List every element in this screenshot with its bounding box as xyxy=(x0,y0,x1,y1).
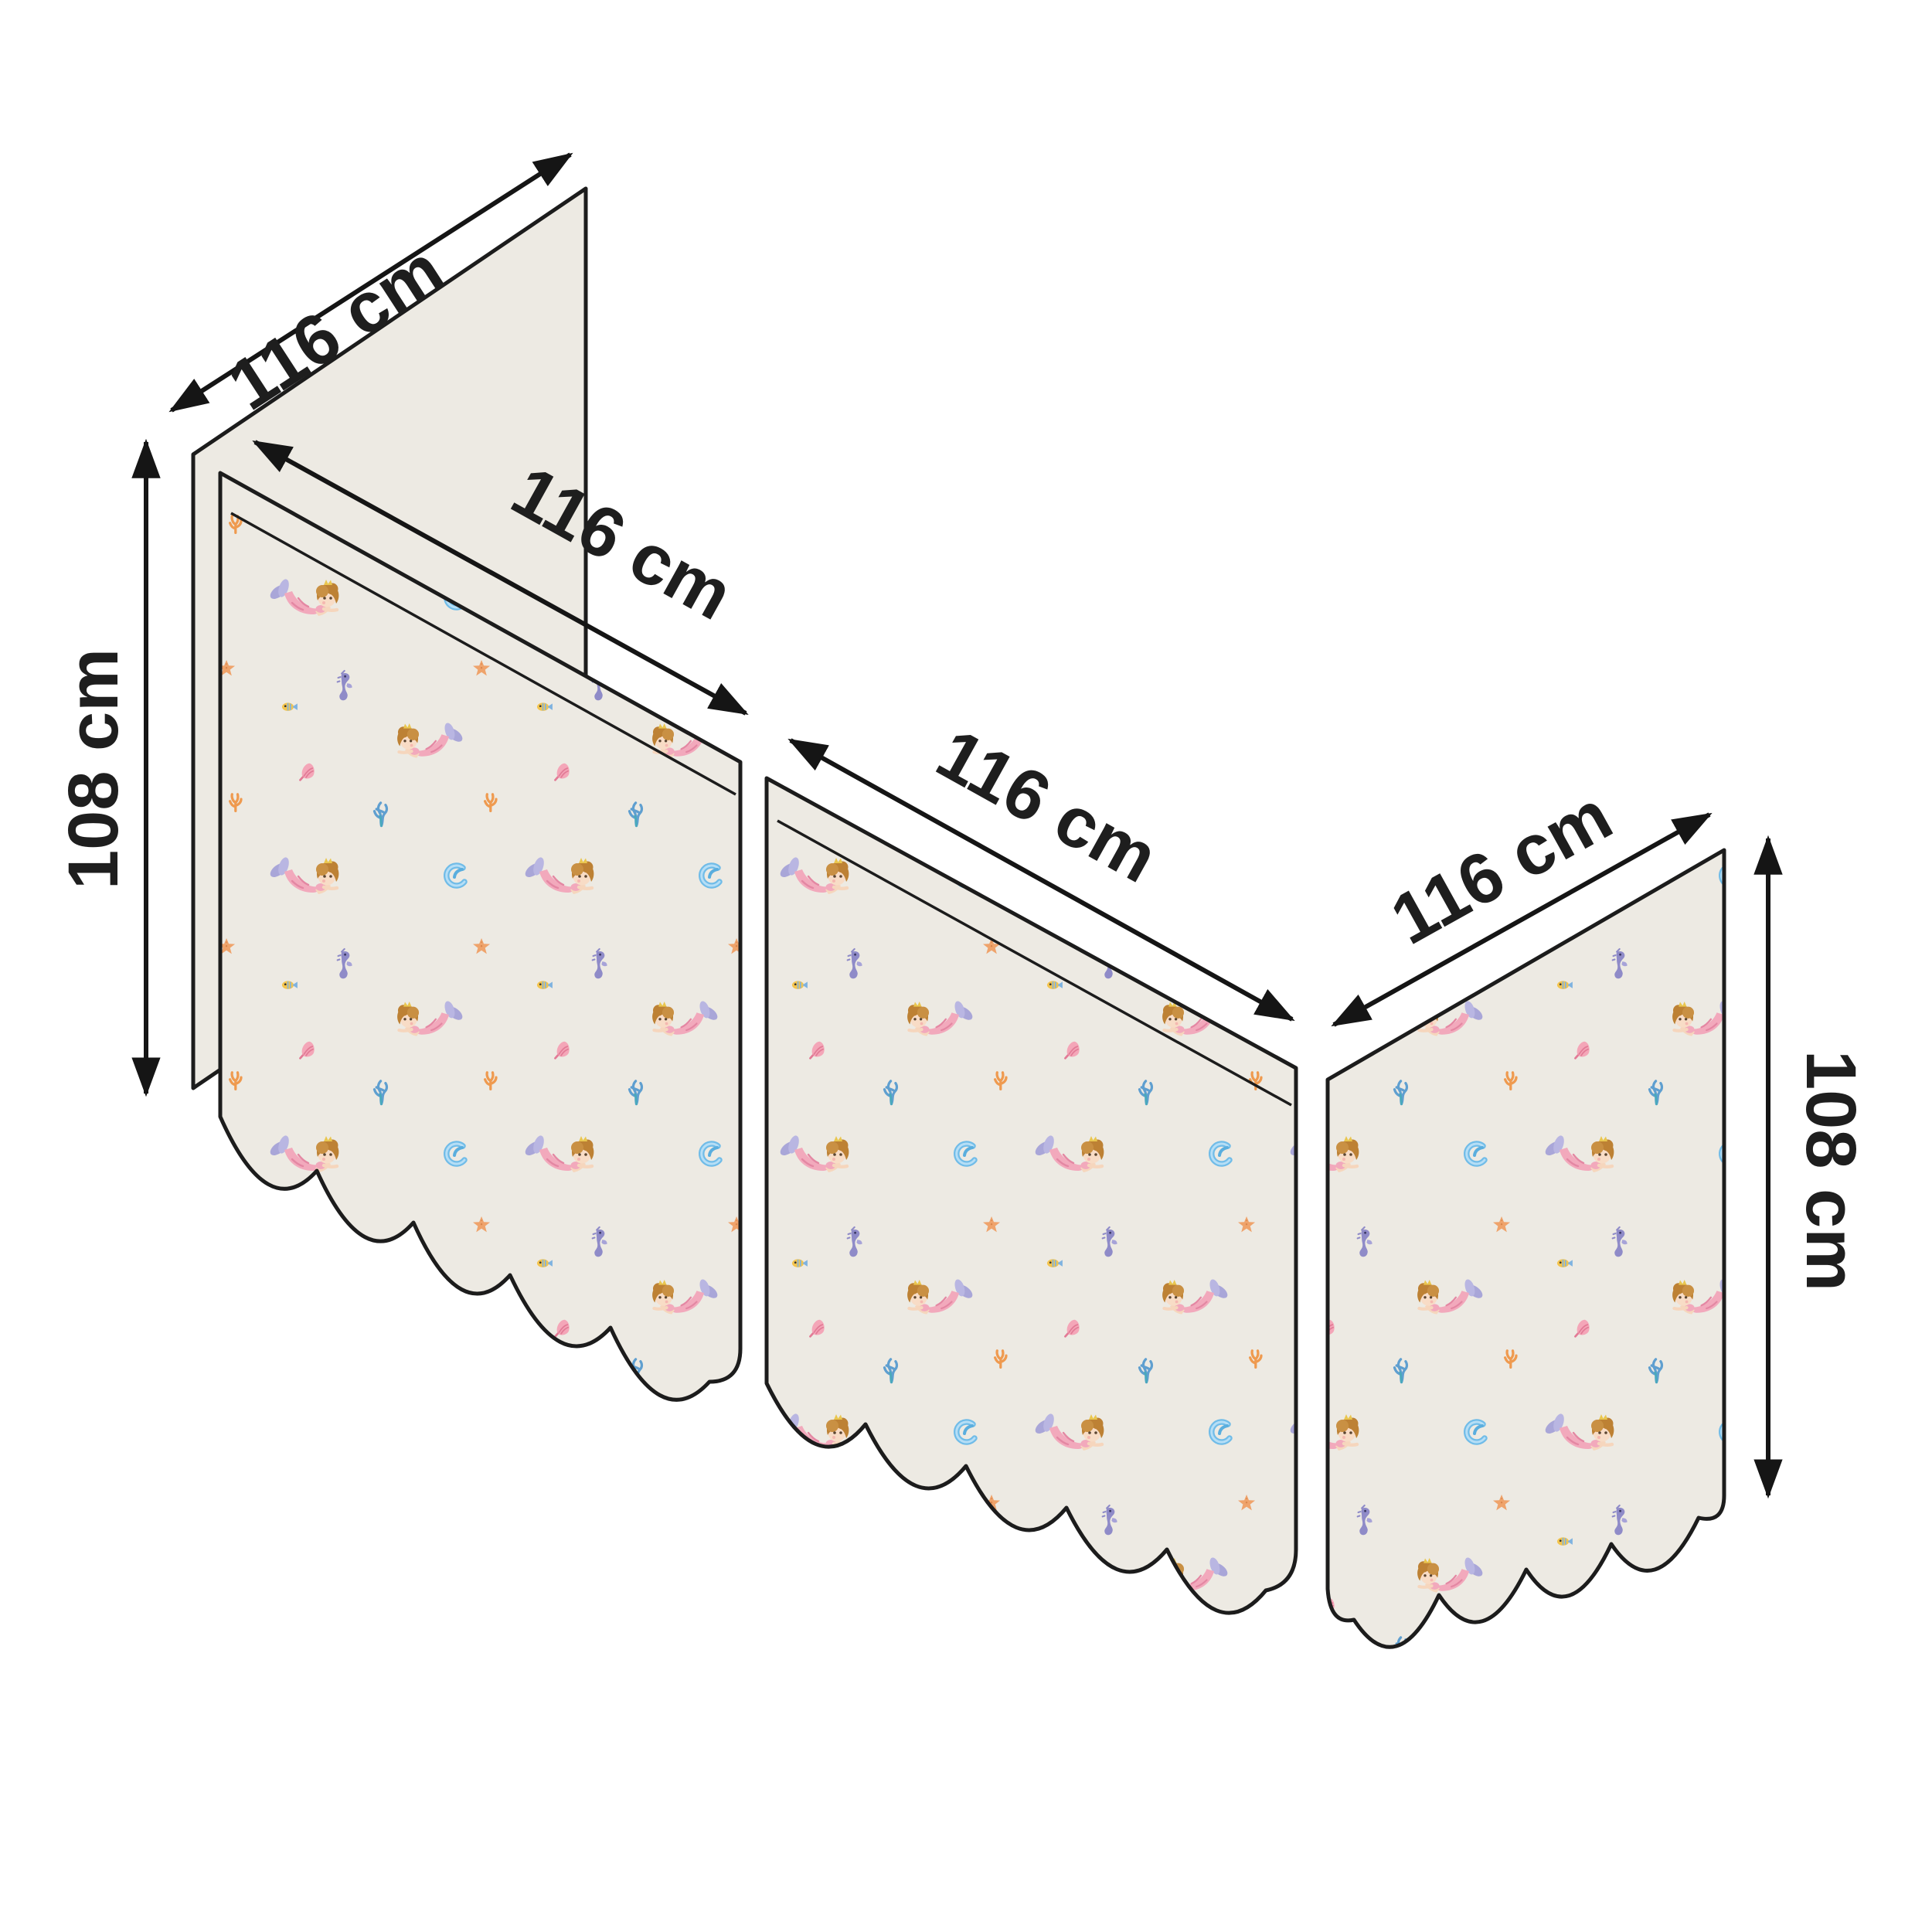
dim-label-panel2-width: 116 cm xyxy=(924,714,1170,898)
curtain-dimension-diagram: 116 cm 116 cm 116 cm 116 cm 108 cm 108 c… xyxy=(0,0,1932,1932)
side-panel-3 xyxy=(1328,850,1724,1647)
dimension-diagram-page: 116 cm 116 cm 116 cm 116 cm 108 cm 108 c… xyxy=(0,0,1932,1932)
dim-label-right-height: 108 cm xyxy=(1791,1050,1870,1291)
front-panel-2 xyxy=(767,778,1296,1613)
dim-label-left-height: 108 cm xyxy=(54,648,133,889)
